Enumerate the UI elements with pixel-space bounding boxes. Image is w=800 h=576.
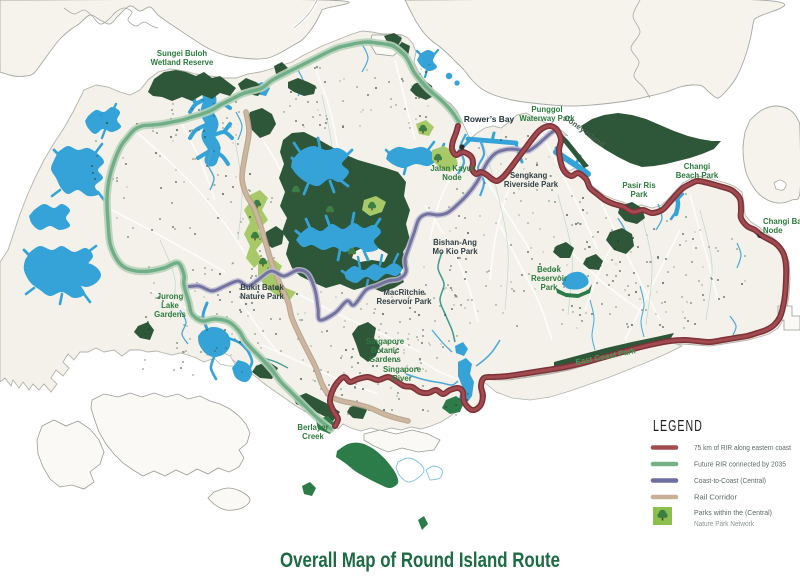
svg-text:Rower’s Bay: Rower’s Bay	[464, 114, 515, 124]
svg-text:Overall Map of Round Island Ro: Overall Map of Round Island Route	[280, 549, 560, 572]
svg-text:75 km of RIR along eastern coa: 75 km of RIR along eastern coast	[694, 443, 791, 452]
svg-text:Coast-to-Coast (Central): Coast-to-Coast (Central)	[694, 476, 766, 485]
svg-text:Bukit BatokNature Park: Bukit BatokNature Park	[240, 283, 284, 301]
svg-text:SingaporeBotanicGardens: SingaporeBotanicGardens	[366, 337, 405, 364]
svg-text:MacRitchieReservoir Park: MacRitchieReservoir Park	[376, 288, 432, 306]
svg-text:Sengkang -Riverside Park: Sengkang -Riverside Park	[504, 171, 559, 189]
svg-text:Nature Park Network: Nature Park Network	[694, 519, 754, 528]
svg-text:Sungei BulohWetland Reserve: Sungei BulohWetland Reserve	[151, 49, 214, 67]
svg-text:LEGEND: LEGEND	[653, 418, 703, 435]
svg-text:Rail Corridor: Rail Corridor	[694, 493, 738, 502]
svg-text:Parks within the (Central): Parks within the (Central)	[694, 508, 772, 517]
svg-text:Future RIR connected by 2035: Future RIR connected by 2035	[694, 460, 786, 469]
svg-text:Bishan-AngMo Kio Park: Bishan-AngMo Kio Park	[432, 238, 478, 256]
